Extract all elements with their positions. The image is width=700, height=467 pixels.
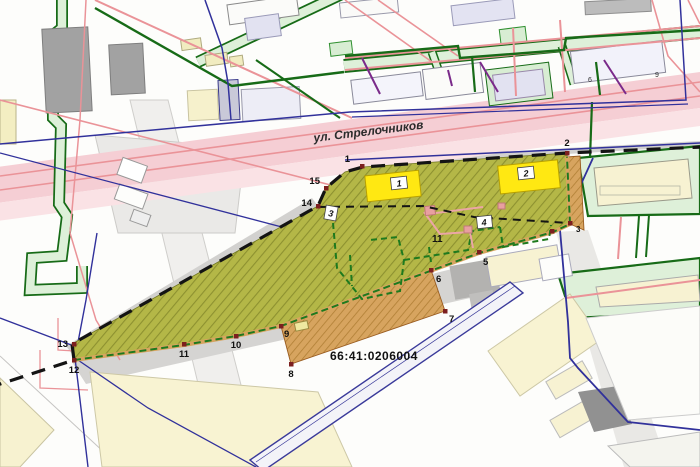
vertex-dot xyxy=(182,342,187,347)
map-viewport: 9 6 xyxy=(0,0,700,467)
pink-structure xyxy=(464,226,472,233)
gray-building xyxy=(109,43,146,95)
contour-label-text: 2 xyxy=(522,168,529,179)
vertex-dot xyxy=(429,268,434,273)
vertex-label: 7 xyxy=(449,314,454,325)
cream-building xyxy=(0,100,16,144)
vertex-dot xyxy=(72,342,77,347)
vertex-label: 12 xyxy=(69,365,80,376)
vertex-dot xyxy=(324,186,329,191)
vertex-2: 2 xyxy=(564,138,569,156)
contour-label-4: 4 xyxy=(476,215,492,229)
vertex-dot xyxy=(477,250,482,255)
vertex-label: 2 xyxy=(564,138,569,149)
cadastral-number-label: 66:41:0206004 xyxy=(330,349,418,363)
vertex-label: 10 xyxy=(231,340,242,351)
cream-building xyxy=(187,89,219,121)
map-canvas[interactable]: 9 6 xyxy=(0,0,700,467)
vertex-dot xyxy=(72,358,77,363)
vertex-dot-unlabeled xyxy=(550,229,555,234)
parcel-area-label: 11 xyxy=(432,234,443,245)
white-wing xyxy=(539,254,572,281)
contour-label-text: 4 xyxy=(480,217,487,228)
vertex-label: 11 xyxy=(179,349,190,360)
vertex-dot xyxy=(443,309,448,314)
vertex-label: 9 xyxy=(284,329,289,340)
contour-label-2: 2 xyxy=(517,166,534,180)
vertex-label: 5 xyxy=(483,257,489,268)
vertex-dot xyxy=(289,362,294,367)
contour-label-3: 3 xyxy=(324,205,338,221)
vertex-dot xyxy=(360,164,365,169)
vertex-label: 13 xyxy=(57,339,68,350)
vertex-label: 6 xyxy=(436,274,441,285)
vertex-label: 8 xyxy=(288,369,293,380)
contour-label-text: 1 xyxy=(396,178,402,188)
vertex-dot xyxy=(316,204,321,209)
green-patch xyxy=(329,41,352,57)
vertex-8: 8 xyxy=(288,362,293,380)
vertex-label: 3 xyxy=(576,225,581,234)
building-floor-label: 6 xyxy=(588,77,592,84)
vertex-label: 14 xyxy=(301,198,312,209)
lavender-building xyxy=(493,69,546,101)
building-floor-label: 9 xyxy=(655,72,659,79)
vertex-dot xyxy=(568,221,573,226)
lavender-building xyxy=(245,14,282,41)
vertex-label: 1 xyxy=(345,154,351,165)
vertex-dot xyxy=(565,151,570,156)
vertex-dot xyxy=(279,324,284,329)
pink-structure xyxy=(498,203,505,209)
vertex-label: 15 xyxy=(309,176,320,187)
lavender-building xyxy=(241,87,301,122)
contour-label-1: 1 xyxy=(390,176,407,190)
vertex-dot xyxy=(234,334,239,339)
